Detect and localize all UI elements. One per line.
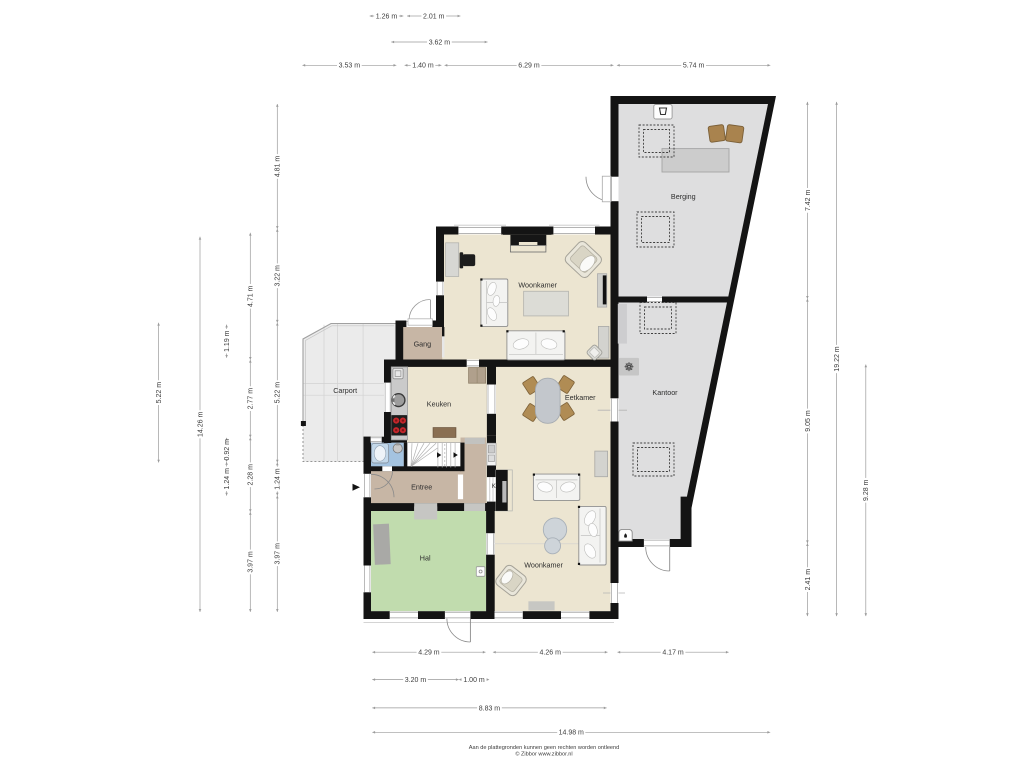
svg-text:4.81 m: 4.81 m	[275, 156, 282, 178]
svg-text:Woonkamer: Woonkamer	[524, 561, 563, 570]
svg-text:Gang: Gang	[414, 340, 432, 349]
svg-text:© Zibbor www.zibbor.nl: © Zibbor www.zibbor.nl	[515, 750, 572, 757]
svg-text:19.22 m: 19.22 m	[834, 346, 841, 371]
svg-text:Woonkamer: Woonkamer	[518, 280, 557, 289]
svg-text:2.41 m: 2.41 m	[805, 569, 812, 591]
svg-text:8.83 m: 8.83 m	[479, 705, 501, 712]
svg-text:4.17 m: 4.17 m	[662, 650, 684, 657]
svg-text:9.05 m: 9.05 m	[805, 410, 812, 432]
svg-text:4.26 m: 4.26 m	[540, 650, 562, 657]
svg-text:Carport: Carport	[333, 386, 357, 395]
svg-text:14.26 m: 14.26 m	[197, 412, 204, 437]
svg-text:7.42 m: 7.42 m	[805, 189, 812, 211]
svg-text:1.40 m: 1.40 m	[412, 63, 434, 70]
svg-text:Keuken: Keuken	[427, 399, 451, 408]
svg-text:K: K	[492, 484, 496, 490]
svg-text:6.29 m: 6.29 m	[518, 63, 540, 70]
svg-text:1.24 m: 1.24 m	[224, 468, 231, 490]
svg-text:Eetkamer: Eetkamer	[565, 393, 596, 402]
svg-text:Kantoor: Kantoor	[652, 388, 678, 397]
svg-text:1.19 m: 1.19 m	[224, 330, 231, 352]
svg-text:3.53 m: 3.53 m	[339, 63, 361, 70]
svg-text:3.62 m: 3.62 m	[429, 39, 451, 46]
svg-text:3.22 m: 3.22 m	[275, 265, 282, 287]
svg-text:4.71 m: 4.71 m	[248, 285, 255, 307]
svg-text:Hal: Hal	[420, 554, 431, 563]
svg-text:1.00 m: 1.00 m	[463, 677, 485, 684]
svg-text:2.77 m: 2.77 m	[248, 388, 255, 410]
svg-text:3.97 m: 3.97 m	[275, 543, 282, 565]
svg-text:3.20 m: 3.20 m	[405, 677, 427, 684]
svg-text:0.92 m: 0.92 m	[224, 439, 231, 461]
svg-text:14.98 m: 14.98 m	[559, 730, 584, 737]
svg-text:4.29 m: 4.29 m	[418, 650, 440, 657]
svg-text:5.74 m: 5.74 m	[683, 63, 705, 70]
svg-text:9.28 m: 9.28 m	[863, 479, 870, 501]
svg-text:2.28 m: 2.28 m	[248, 464, 255, 486]
svg-text:Entree: Entree	[411, 483, 432, 492]
svg-text:2.01 m: 2.01 m	[423, 13, 445, 20]
svg-text:1.24 m: 1.24 m	[275, 468, 282, 490]
svg-text:5.22 m: 5.22 m	[275, 382, 282, 404]
svg-text:1.26 m: 1.26 m	[376, 13, 398, 20]
svg-text:Berging: Berging	[671, 192, 696, 201]
svg-text:3.97 m: 3.97 m	[248, 551, 255, 573]
svg-text:5.22 m: 5.22 m	[156, 382, 163, 404]
svg-text:Aan de plattegronden kunnen ge: Aan de plattegronden kunnen geen rechten…	[469, 745, 620, 751]
